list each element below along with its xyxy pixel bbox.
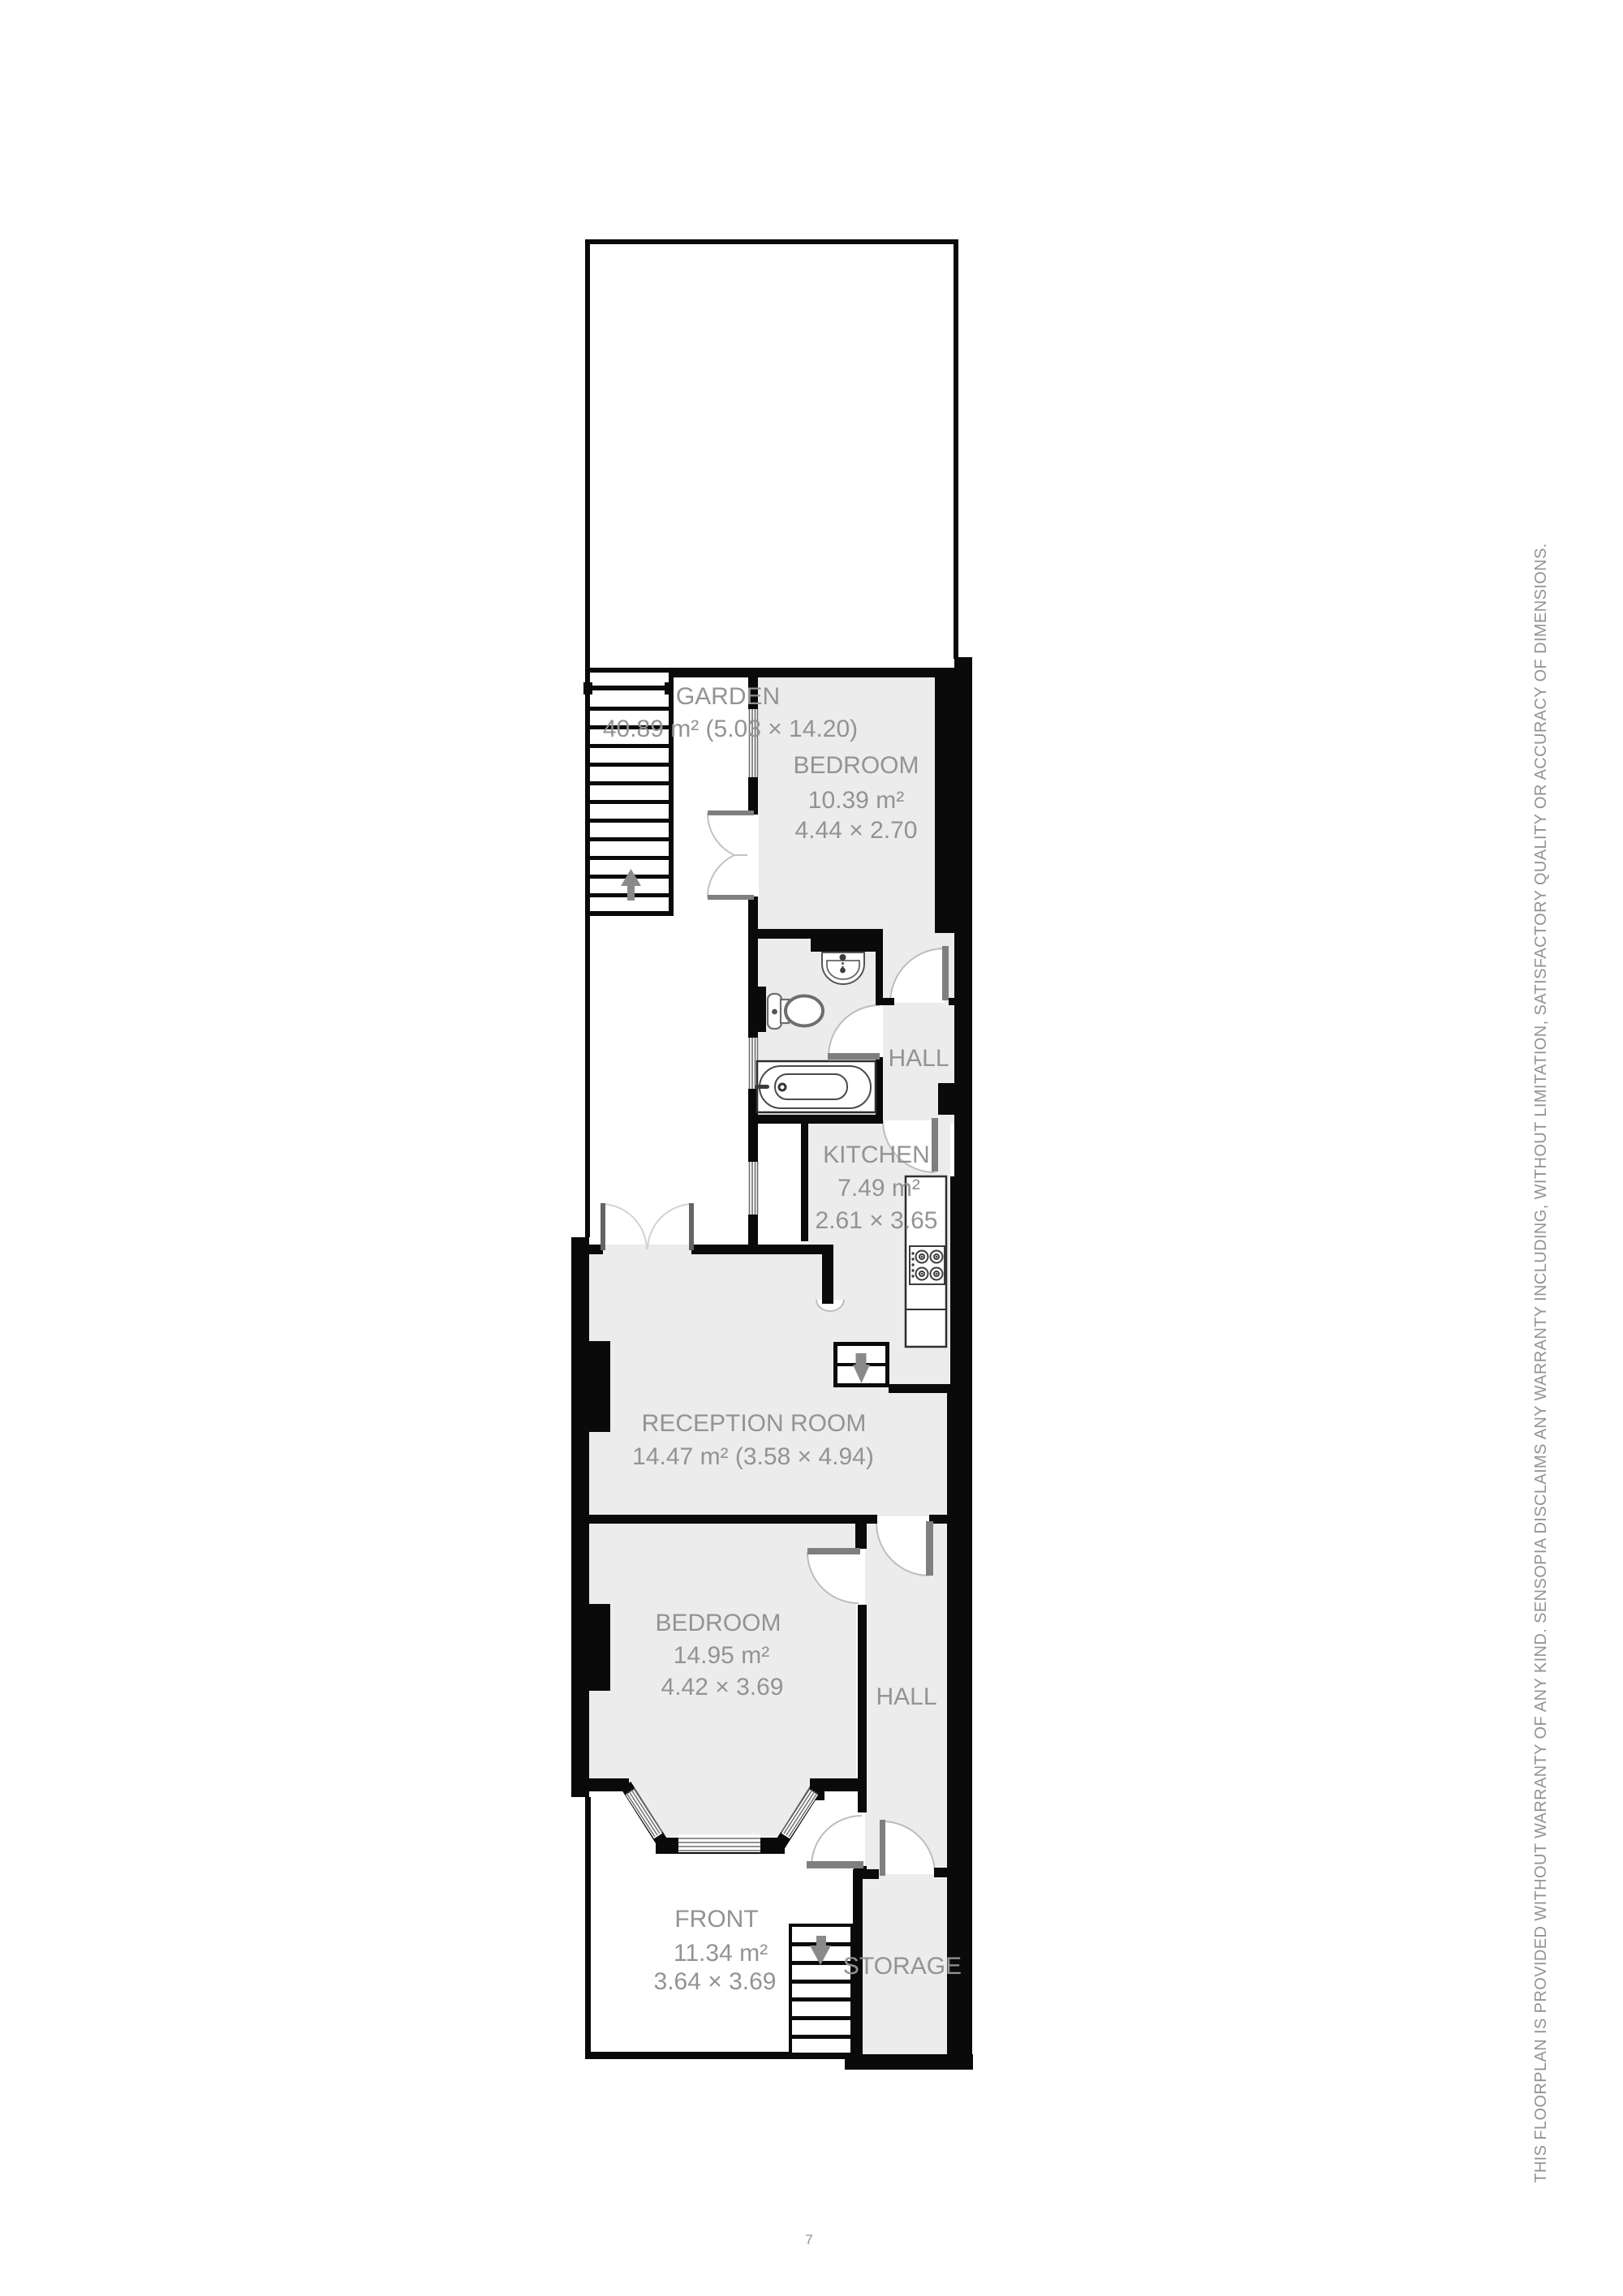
svg-text:STORAGE: STORAGE (843, 1953, 962, 1980)
svg-text:14.47 m² (3.58 × 4.94): 14.47 m² (3.58 × 4.94) (632, 1443, 874, 1470)
svg-text:7.49 m²: 7.49 m² (837, 1175, 920, 1202)
svg-text:HALL: HALL (888, 1045, 949, 1072)
svg-text:40.89 m² (5.03 × 14.20): 40.89 m² (5.03 × 14.20) (603, 716, 858, 742)
svg-text:THIS FLOORPLAN IS PROVIDED WIT: THIS FLOORPLAN IS PROVIDED WITHOUT WARRA… (1532, 543, 1550, 2183)
svg-text:BEDROOM: BEDROOM (793, 752, 919, 779)
svg-text:2.61 × 3.65: 2.61 × 3.65 (816, 1207, 938, 1234)
svg-text:4.42 × 3.69: 4.42 × 3.69 (661, 1674, 784, 1701)
svg-text:HALL: HALL (876, 1683, 936, 1710)
svg-text:3.64 × 3.69: 3.64 × 3.69 (654, 1968, 777, 1995)
svg-text:4.44 × 2.70: 4.44 × 2.70 (795, 817, 918, 844)
svg-text:11.34 m²: 11.34 m² (674, 1940, 768, 1967)
svg-text:RECEPTION ROOM: RECEPTION ROOM (642, 1410, 867, 1437)
svg-text:10.39 m²: 10.39 m² (808, 787, 904, 814)
svg-text:7: 7 (805, 2232, 812, 2247)
svg-text:KITCHEN: KITCHEN (823, 1142, 930, 1168)
svg-text:14.95 m²: 14.95 m² (674, 1642, 769, 1669)
svg-text:FRONT: FRONT (674, 1906, 758, 1933)
svg-text:BEDROOM: BEDROOM (655, 1610, 781, 1636)
svg-text:GARDEN: GARDEN (676, 683, 780, 710)
